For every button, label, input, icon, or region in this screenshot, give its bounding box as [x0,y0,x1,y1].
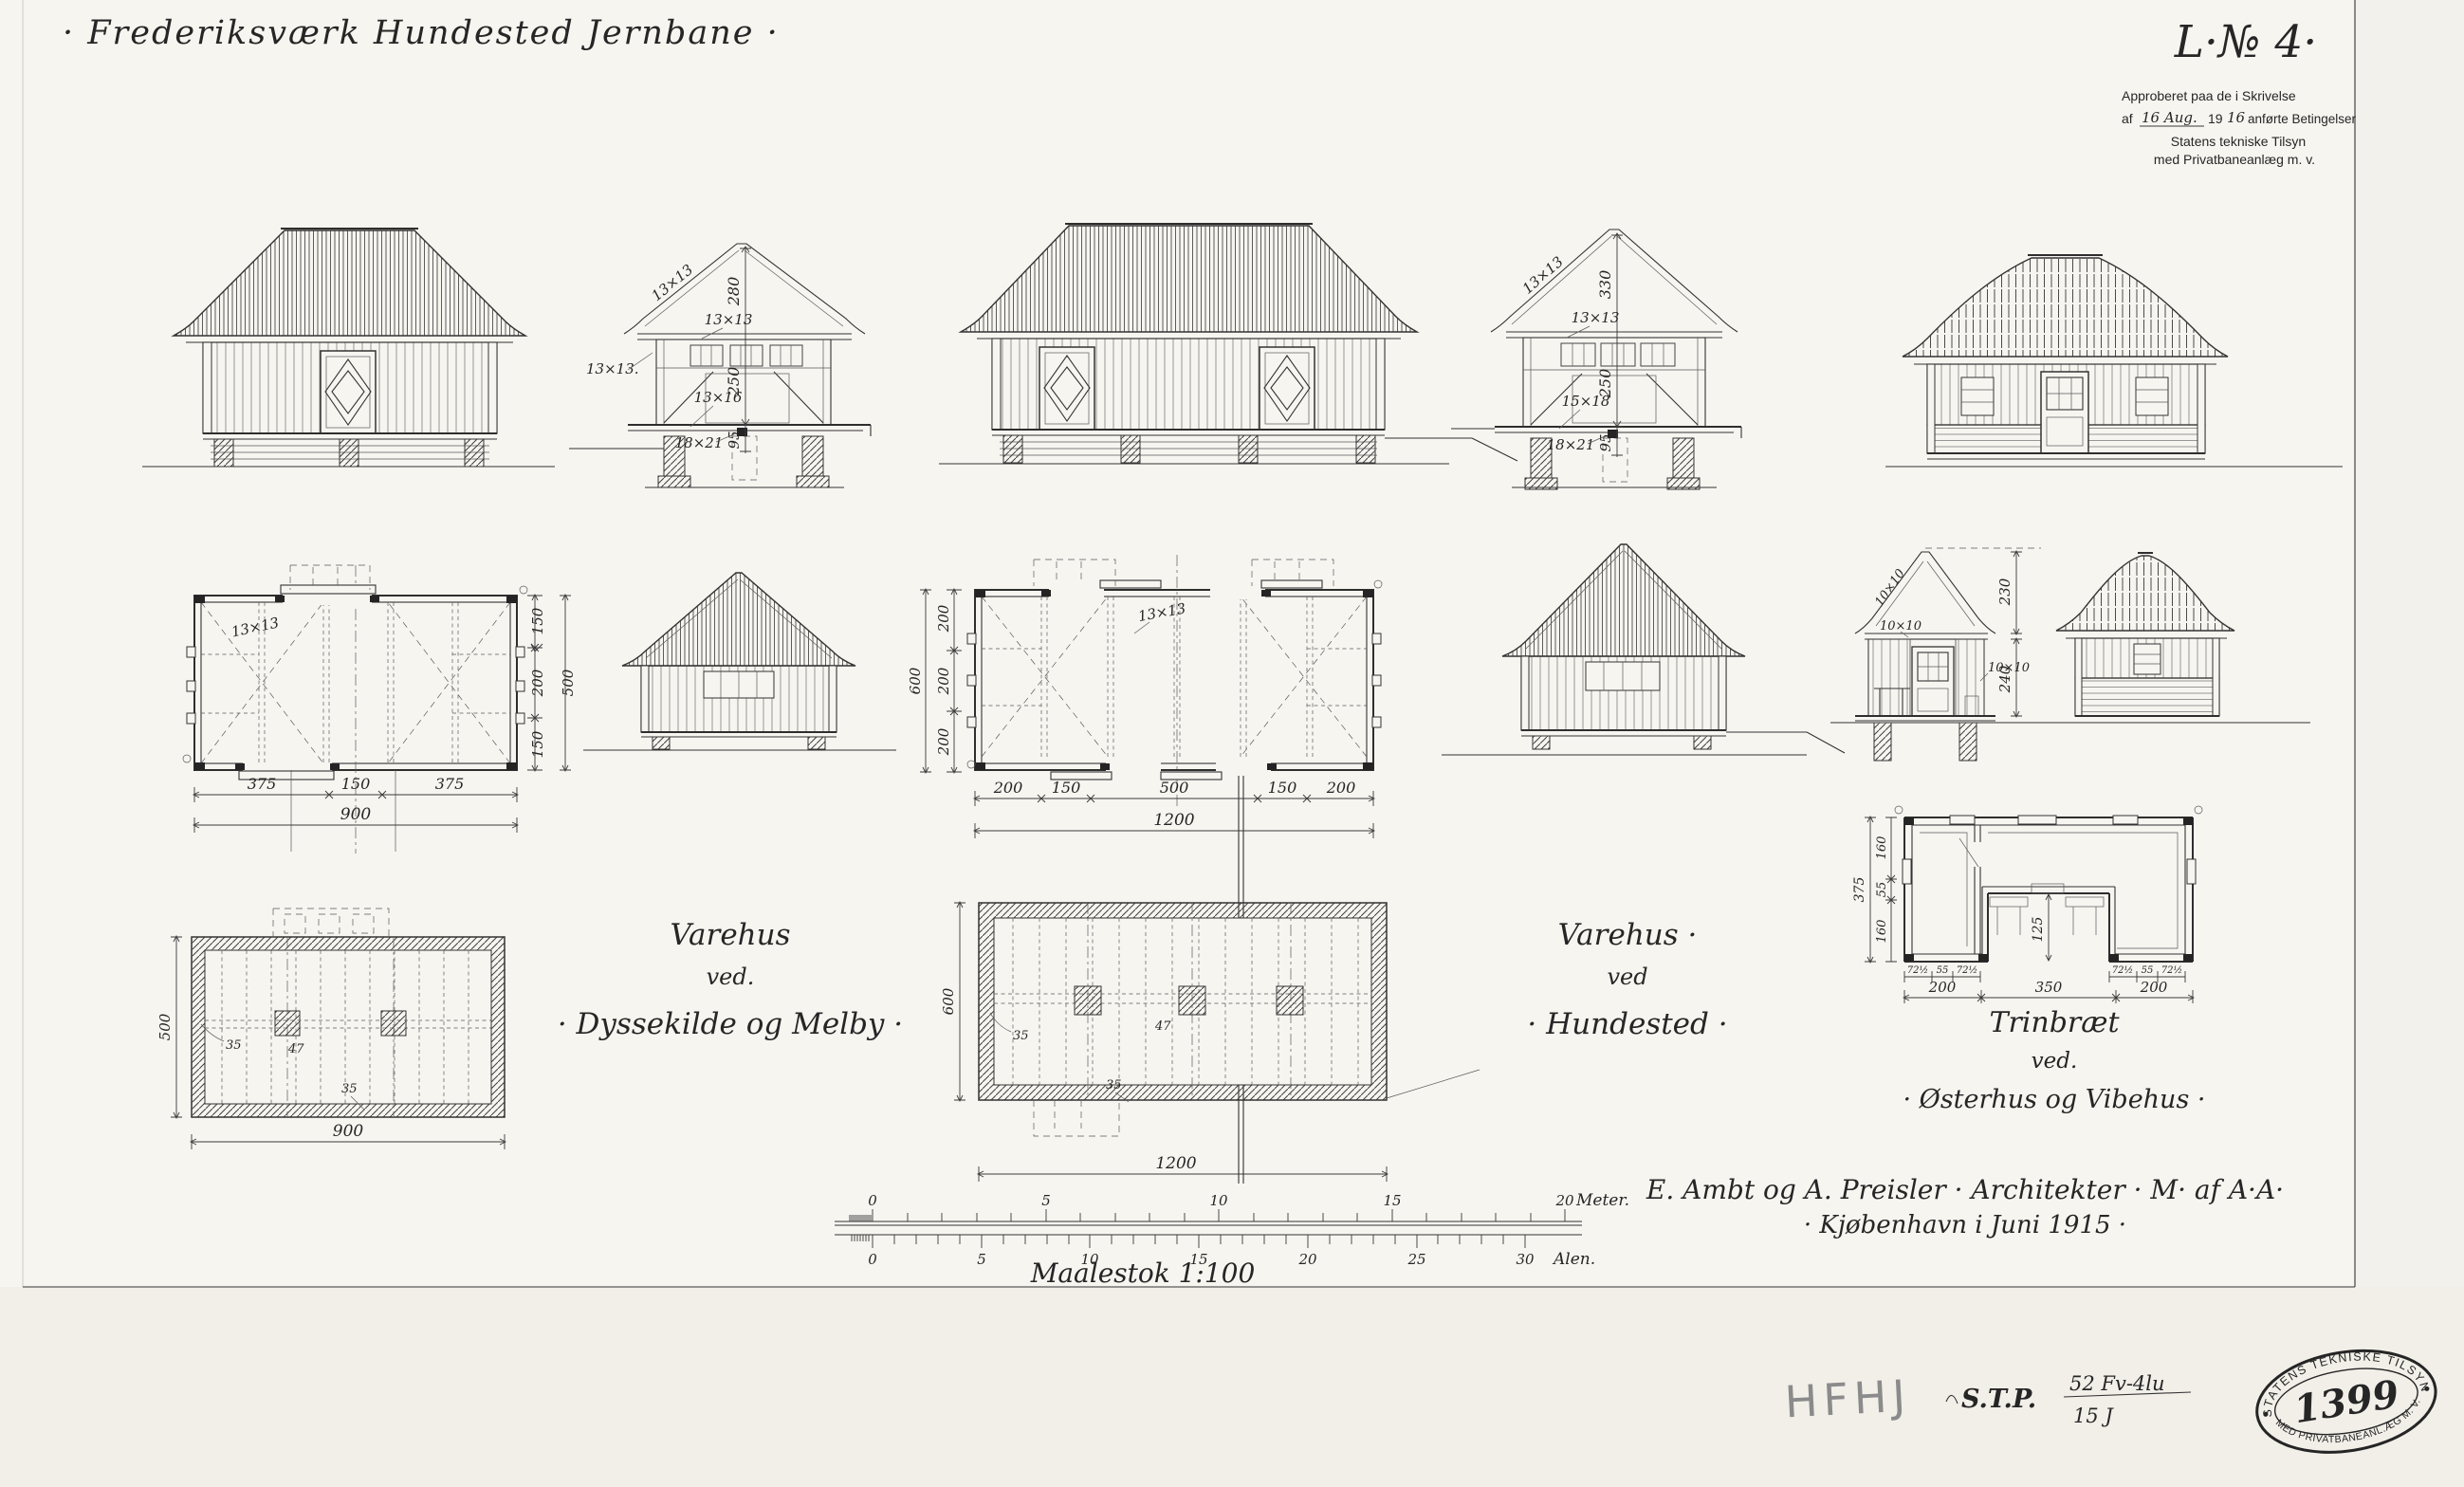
elevation-front-trinbraet [1885,255,2343,467]
scale-bar: 0 5 10 15 20 Meter. 0 5 10 15 20 25 30 A… [835,1191,1629,1289]
section-trinbraet: 230 240 10×10 10×10 10×10 [1855,548,2041,761]
dim: 1200 [1155,1154,1196,1173]
section-hundested: 330 250 95 13×13 13×13 15×18 18×21 [1451,229,1741,489]
dim: 95 [1597,433,1614,451]
dim: 500 [156,1013,174,1040]
timber-label: 18×21 [1547,436,1595,453]
note: 47 [287,1042,304,1056]
sheet-title: · Frederiksværk Hundested Jernbane · [63,14,780,52]
caption-line: · Østerhus og Vibehus · [1903,1085,2206,1114]
alen-tick: 0 [868,1251,877,1268]
caption-melby: Varehus ved. · Dyssekilde og Melby · [558,918,903,1041]
timber-label: 13×13 [1572,309,1620,326]
dim: 150 [529,607,546,634]
note: 35 [1013,1029,1029,1043]
dim: 200 [935,667,952,695]
dim-chain-section-trinbraet: 230 240 [1996,551,2022,717]
timber-label: 10×10 [1880,619,1922,633]
timber-label: 10×10 [1872,567,1908,610]
hfhj-pencil-mark: HFHJ [1783,1370,1912,1428]
caption-line: · Dyssekilde og Melby · [558,1007,903,1041]
elevation-gable-hundested [1442,544,1845,755]
window [1961,377,1994,415]
timber-label: 18×21 [675,434,724,451]
dim-small: 55 [2142,965,2154,976]
dim: 160 [1875,920,1889,944]
dim: 125 [2031,917,2046,943]
caption-line: · Hundested · [1527,1007,1727,1041]
sliding-door [321,351,376,433]
dim: 150 [341,775,371,793]
stp-ref-bottom: 15 J [2073,1404,2114,1427]
dim-total: 375 [1852,877,1867,903]
caption-trinbraet: Trinbræt ved. · Østerhus og Vibehus · [1903,1006,2206,1114]
dim: 200 [935,604,952,633]
dim: 150 [529,730,546,758]
stp-ref-top: 52 Fv-4lu [2069,1372,2165,1395]
window [2136,377,2168,415]
title-block: · Frederiksværk Hundested Jernbane · L·№… [63,14,2317,68]
drawing-number: L·№ 4· [2174,16,2317,68]
timber-label: 13×13 [230,614,280,640]
note: 35 [1106,1078,1122,1092]
caption-line: ved. [707,964,755,990]
dim: 150 [1268,779,1297,797]
dim-small: 55 [1937,965,1949,976]
approval-line3: Statens tekniske Tilsyn [2171,134,2306,149]
timber-label: 15×18 [1562,393,1610,410]
dim: 200 [993,779,1023,797]
drawing-sheet: · Frederiksværk Hundested Jernbane · L·№… [0,0,2464,1487]
dim: 280 [725,277,743,307]
dim-small: 72½ [1957,965,1977,976]
dim: 330 [1596,270,1614,300]
approval-line1: Approberet paa de i Skrivelse [2122,88,2296,103]
dim: 350 [2035,979,2063,996]
meter-tick: 5 [1041,1192,1051,1209]
floor-plan-trinbraet: 375 160 55 160 72½ 55 72½ 72½ 55 72½ 200… [1852,806,2202,1003]
dim: 375 [248,775,277,793]
timber-label: 13×13 [1519,253,1567,298]
sliding-door [1260,347,1315,430]
timber-label: 13×13 [648,261,696,304]
dim: 500 [1160,779,1189,797]
alen-tick: 5 [977,1251,986,1268]
approval-line4: med Privatbaneanlæg m. v. [2154,152,2315,167]
alen-tick: 20 [1297,1251,1317,1268]
dim-total: 1200 [1153,811,1194,830]
meter-tick: 20 [1554,1192,1574,1209]
approval-year-print: 19 [2208,111,2223,126]
dim: 375 [435,775,465,793]
signature-block: E. Ambt og A. Preisler · Architekter · M… [1646,1174,2284,1239]
approval-af: af [2122,111,2133,126]
caption-line: Varehus [670,918,790,952]
meter-tick: 0 [868,1192,877,1209]
dim: 55 [1875,882,1889,898]
foundation-plan-hundested: 600 1200 35 47 35 [940,902,1480,1182]
note: 47 [1154,1019,1171,1034]
scale-caption: Maalestok 1:100 [1030,1258,1256,1289]
caption-hundested: Varehus · ved · Hundested · [1527,918,1727,1041]
foundation-plan-melby: 500 900 35 47 35 [156,909,506,1149]
approval-block: Approberet paa de i Skrivelse af 16 Aug.… [2122,88,2357,167]
timber-label: 13×13. [586,360,639,377]
approval-year-hand: 16 [2227,109,2246,126]
dim: 230 [1996,578,2013,606]
floor-plan-melby: 13×13 375 150 375 900 150 200 150 500 [183,565,577,854]
signature-line: E. Ambt og A. Preisler · Architekter · M… [1646,1174,2284,1205]
dim: 200 [2140,979,2168,996]
signature-line: · Kjøbenhavn i Juni 1915 · [1804,1211,2126,1239]
alen-unit: Alen. [1552,1250,1595,1269]
dim: 600 [940,987,957,1015]
dim: 200 [529,669,546,697]
caption-line: ved [1607,964,1647,990]
dim: 150 [1052,779,1081,797]
elevation-gable-melby [583,573,896,750]
dim: 200 [1928,979,1957,996]
dim: 200 [1326,779,1356,797]
dim: 200 [935,727,952,756]
meter-tick: 15 [1383,1192,1401,1209]
note: 35 [226,1038,242,1053]
meter-tick: 10 [1209,1192,1228,1209]
caption-line: Varehus · [1558,918,1698,952]
dim-small: 72½ [2112,965,2133,976]
elevation-side-hundested [939,224,1517,464]
dim-total: 500 [560,669,577,696]
elevation-side-melby [142,229,555,467]
timber-label: 13×16 [694,389,743,406]
note: 35 [341,1082,358,1096]
dim-total: 600 [907,667,924,694]
meter-unit: Meter. [1575,1191,1629,1210]
stp-mark: S.T.P. [1961,1385,2036,1414]
caption-line: Trinbræt [1989,1006,2120,1039]
section-melby: 280 250 95 13×13 13×13 13×13. 13×16 18×2… [569,244,871,487]
dim-small: 72½ [2161,965,2182,976]
window [2134,644,2161,674]
alen-tick: 30 [1516,1251,1535,1268]
dim: 900 [333,1122,364,1141]
dim-small: 72½ [1907,965,1928,976]
dim-total: 900 [340,805,372,824]
timber-label: 10×10 [1988,661,2030,675]
sliding-door [1039,347,1094,430]
dim: 95 [726,431,743,449]
caption-line: ved. [2032,1049,2078,1074]
alen-tick: 25 [1407,1251,1425,1268]
timber-label: 13×13 [705,311,753,328]
approval-date: 16 Aug. [2142,109,2197,126]
door [2041,372,2088,453]
dim: 160 [1875,836,1889,860]
approval-line2-rest: anførte Betingelser [2248,112,2357,126]
dim-chain-plan-hundested: 200 150 500 150 200 1200 200 200 200 600 [907,589,1374,838]
